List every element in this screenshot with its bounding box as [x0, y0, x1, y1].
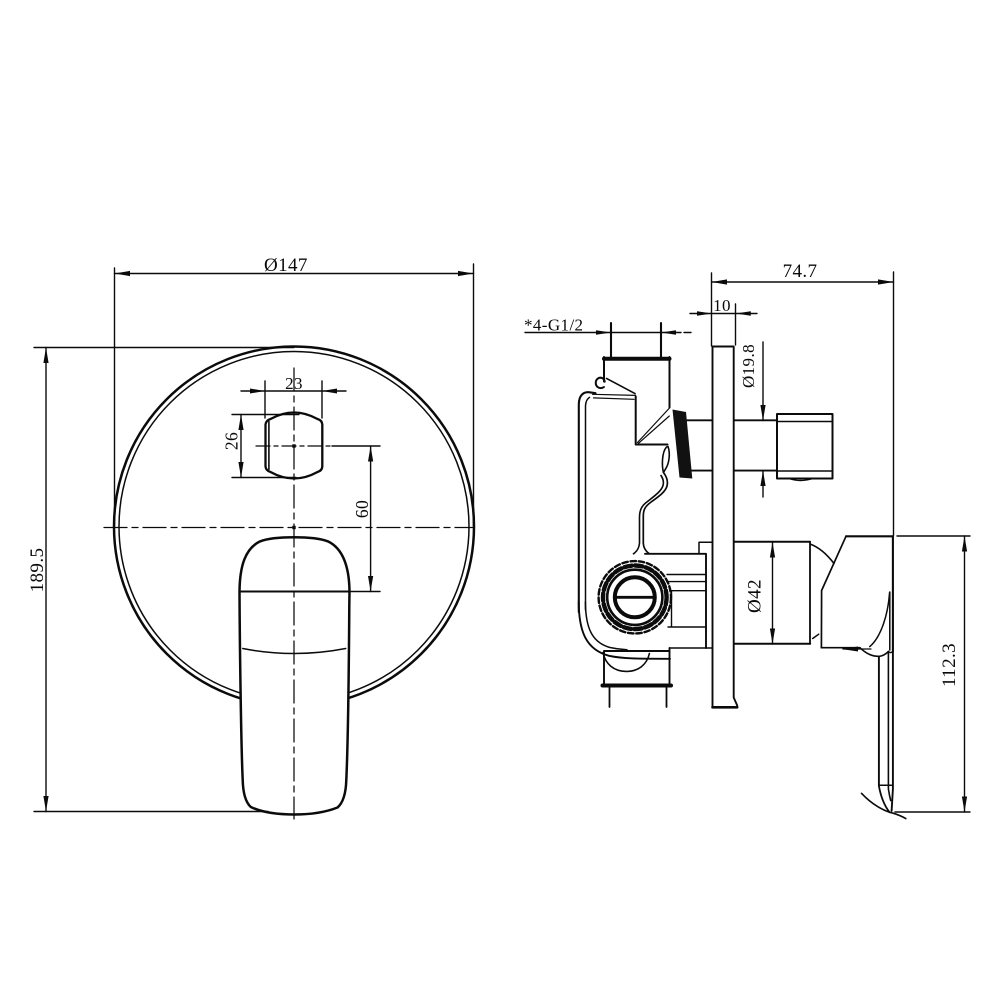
svg-text:*4-G1/2: *4-G1/2 [524, 316, 583, 335]
svg-text:23: 23 [285, 374, 303, 393]
svg-text:74.7: 74.7 [783, 261, 818, 282]
svg-text:60: 60 [352, 500, 372, 518]
svg-text:Ø19.8: Ø19.8 [739, 344, 758, 388]
svg-text:Ø147: Ø147 [264, 255, 308, 276]
svg-text:189.5: 189.5 [27, 548, 48, 593]
svg-text:10: 10 [713, 296, 731, 315]
svg-text:26: 26 [222, 432, 242, 450]
svg-text:Ø42: Ø42 [745, 579, 766, 613]
svg-text:112.3: 112.3 [939, 643, 960, 687]
